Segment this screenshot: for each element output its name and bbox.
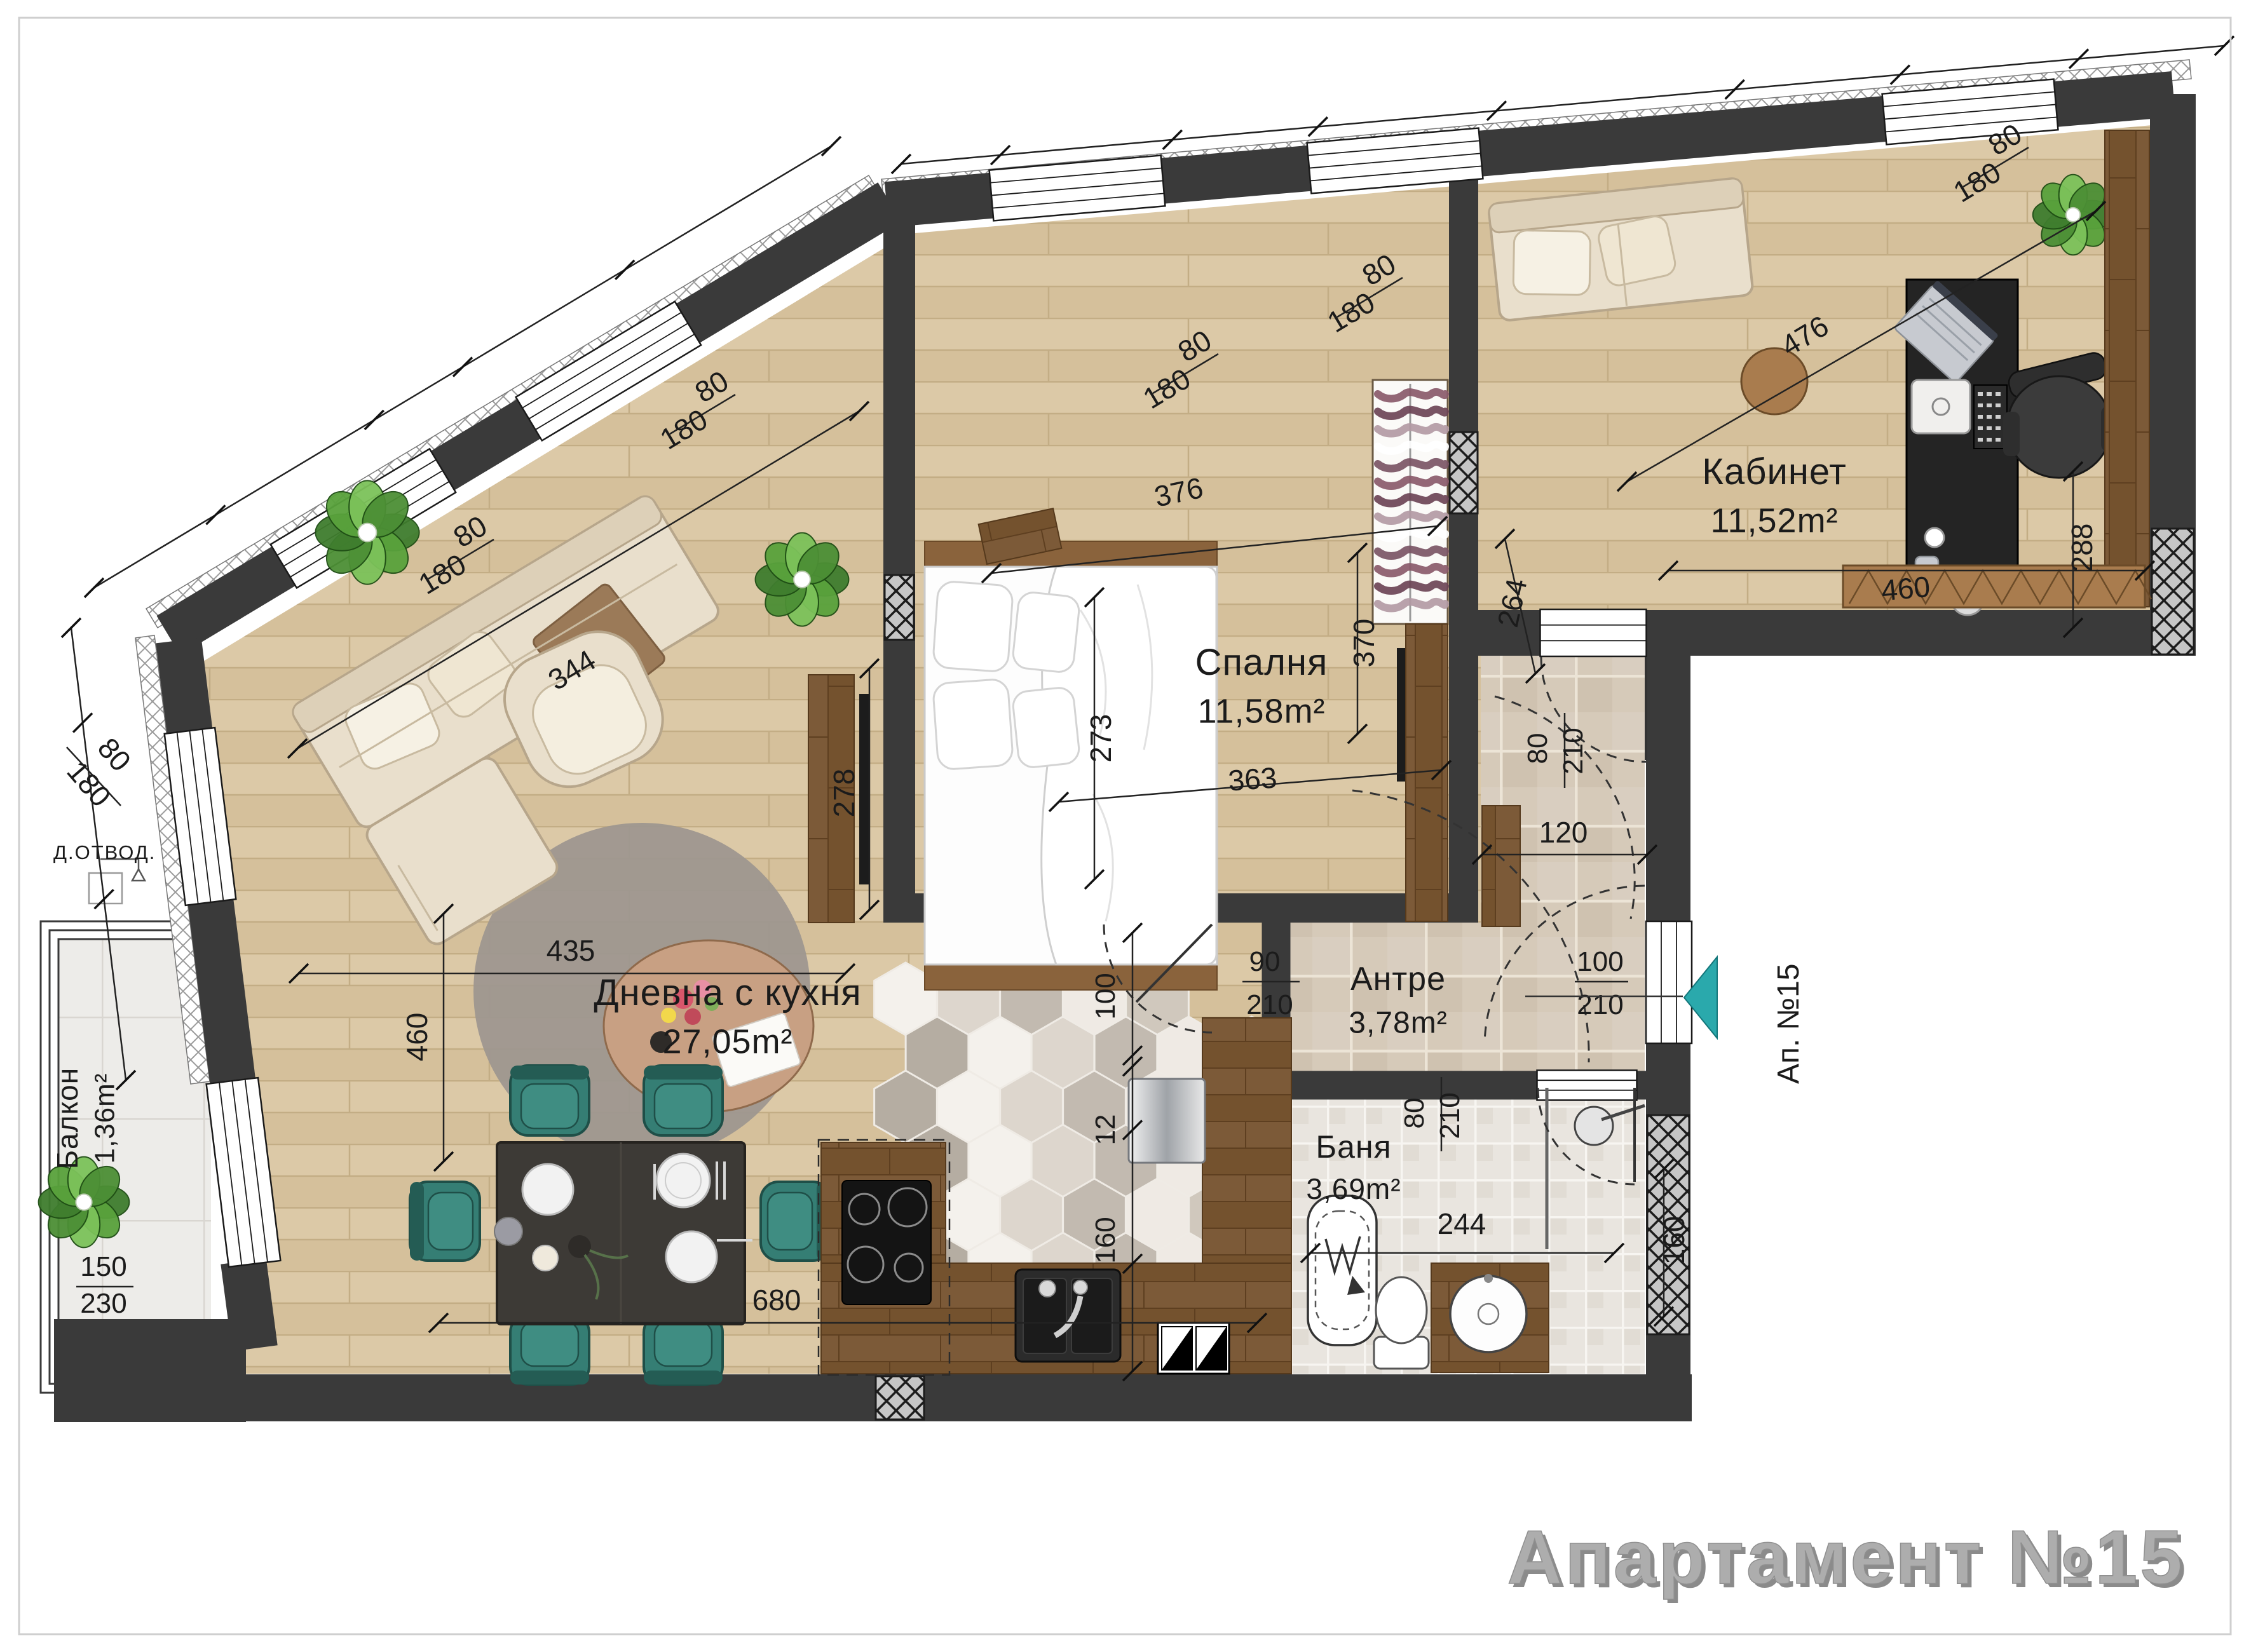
dim-label: 273	[1084, 714, 1117, 763]
dim-label: 100	[1090, 973, 1121, 1019]
dim-label: 160	[1090, 1217, 1121, 1263]
dim-label: 80	[1522, 733, 1553, 764]
dim-label: 435	[547, 934, 595, 967]
dining-table	[494, 1142, 752, 1324]
room-area: 27,05m²	[662, 1022, 792, 1060]
hallway-cabinet	[1482, 806, 1520, 926]
bathroom-vanity	[1431, 1263, 1549, 1372]
dim-label: 150	[80, 1251, 126, 1282]
plant	[315, 480, 419, 584]
door-opening	[1537, 1071, 1637, 1100]
dim-label: 160	[1657, 1216, 1690, 1265]
tv-living	[859, 694, 869, 884]
room-area: 3,78m²	[1349, 1006, 1447, 1040]
floor-plan-apartment-15: 8018080180801808018080180801801502303444…	[0, 0, 2251, 1652]
room-area: 11,52m²	[1710, 501, 1838, 539]
kitchen-sink	[1016, 1269, 1120, 1362]
bed-foot-bench	[925, 965, 1217, 990]
room-name: Баня	[1316, 1129, 1391, 1165]
dim-label: 230	[80, 1288, 126, 1319]
section-symbol	[1158, 1323, 1229, 1374]
dim-label: 12	[1090, 1114, 1121, 1146]
washing-machine	[1308, 1196, 1377, 1345]
dining-chair	[510, 1066, 589, 1135]
dim-label: 680	[752, 1283, 801, 1317]
office-wall-cabinet	[2105, 130, 2149, 607]
dim-label: 363	[1227, 761, 1278, 797]
dim-label: 244	[1438, 1207, 1486, 1240]
shower-head	[1575, 1107, 1613, 1145]
wall-corner-balcony	[54, 1319, 246, 1422]
tv-bedroom	[1397, 648, 1405, 782]
dim-label: 80	[1399, 1098, 1430, 1129]
desk-printer	[1912, 380, 1970, 433]
room-area: 1,36m²	[90, 1073, 121, 1164]
dim-label: 210	[1246, 989, 1293, 1020]
room-name: Антре	[1350, 961, 1446, 998]
cooktop	[842, 1181, 931, 1304]
dim-label: 90	[1249, 946, 1281, 977]
room-name: Спалня	[1195, 642, 1328, 683]
door-opening	[1540, 609, 1647, 656]
dim-label: 100	[1577, 946, 1623, 977]
dining-chair	[761, 1182, 831, 1261]
plant	[2033, 175, 2113, 255]
plan-title: Апартамент №15	[1507, 1515, 2185, 1600]
dim-label: 460	[400, 1013, 433, 1062]
toilet	[1374, 1277, 1429, 1369]
dim-label: 278	[827, 769, 860, 818]
dim-label: 210	[1558, 728, 1589, 774]
office-sofa	[1488, 178, 1753, 322]
kitchen-tall-cabinet	[1202, 1018, 1291, 1263]
room-area: 3,69m²	[1306, 1172, 1401, 1205]
door-opening	[1646, 921, 1692, 1043]
wardrobe	[1373, 380, 1448, 624]
refrigerator	[1129, 1079, 1205, 1163]
dim-label: 120	[1539, 816, 1588, 849]
room-name: Дневна с кухня	[594, 972, 861, 1013]
dim-label: 370	[1347, 619, 1380, 668]
dim-label: 210	[1577, 989, 1623, 1020]
desk-cup	[1925, 528, 1944, 547]
drain-label: Д.ОТВОД.	[53, 841, 156, 863]
dim-label: 210	[1434, 1092, 1466, 1139]
plant	[39, 1157, 130, 1248]
dim-label: 460	[1880, 570, 1931, 607]
plant	[756, 533, 849, 626]
dim-label: 288	[2065, 524, 2098, 572]
desk-keypad	[1974, 385, 2007, 449]
room-area: 11,58m²	[1197, 692, 1325, 730]
dining-chair	[410, 1182, 480, 1261]
room-name: Балкон	[51, 1067, 84, 1169]
room-name: Кабинет	[1702, 451, 1847, 492]
apartment-number-marker: Ап. №15	[1772, 963, 1806, 1084]
dining-chair	[644, 1066, 723, 1135]
